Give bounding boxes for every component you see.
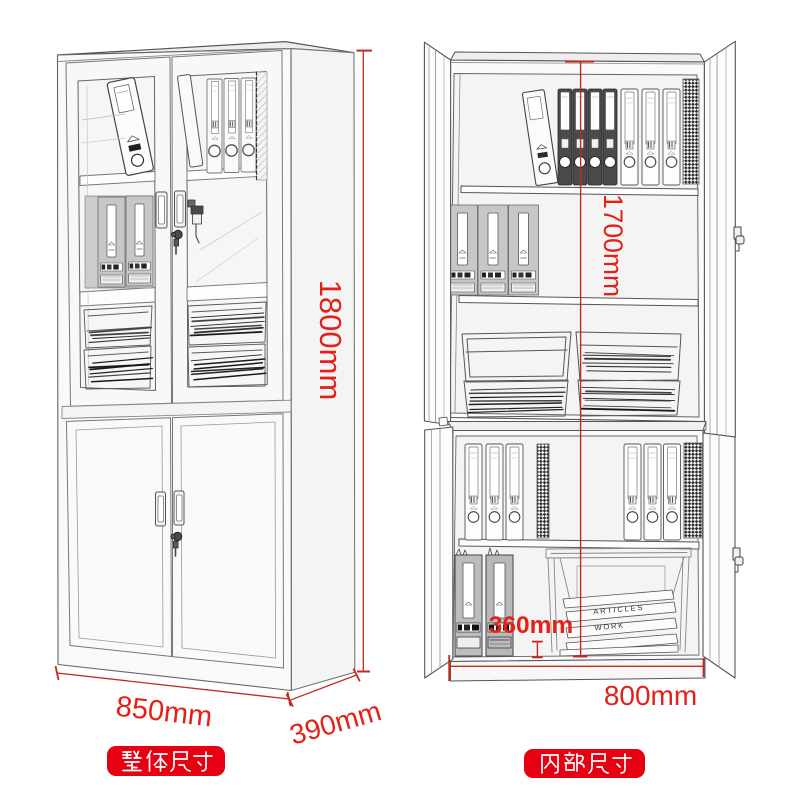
svg-text:1800mm: 1800mm [313,280,348,401]
svg-text:800mm: 800mm [604,680,697,711]
svg-text:1700mm: 1700mm [598,194,628,297]
svg-text:360mm: 360mm [489,612,573,639]
